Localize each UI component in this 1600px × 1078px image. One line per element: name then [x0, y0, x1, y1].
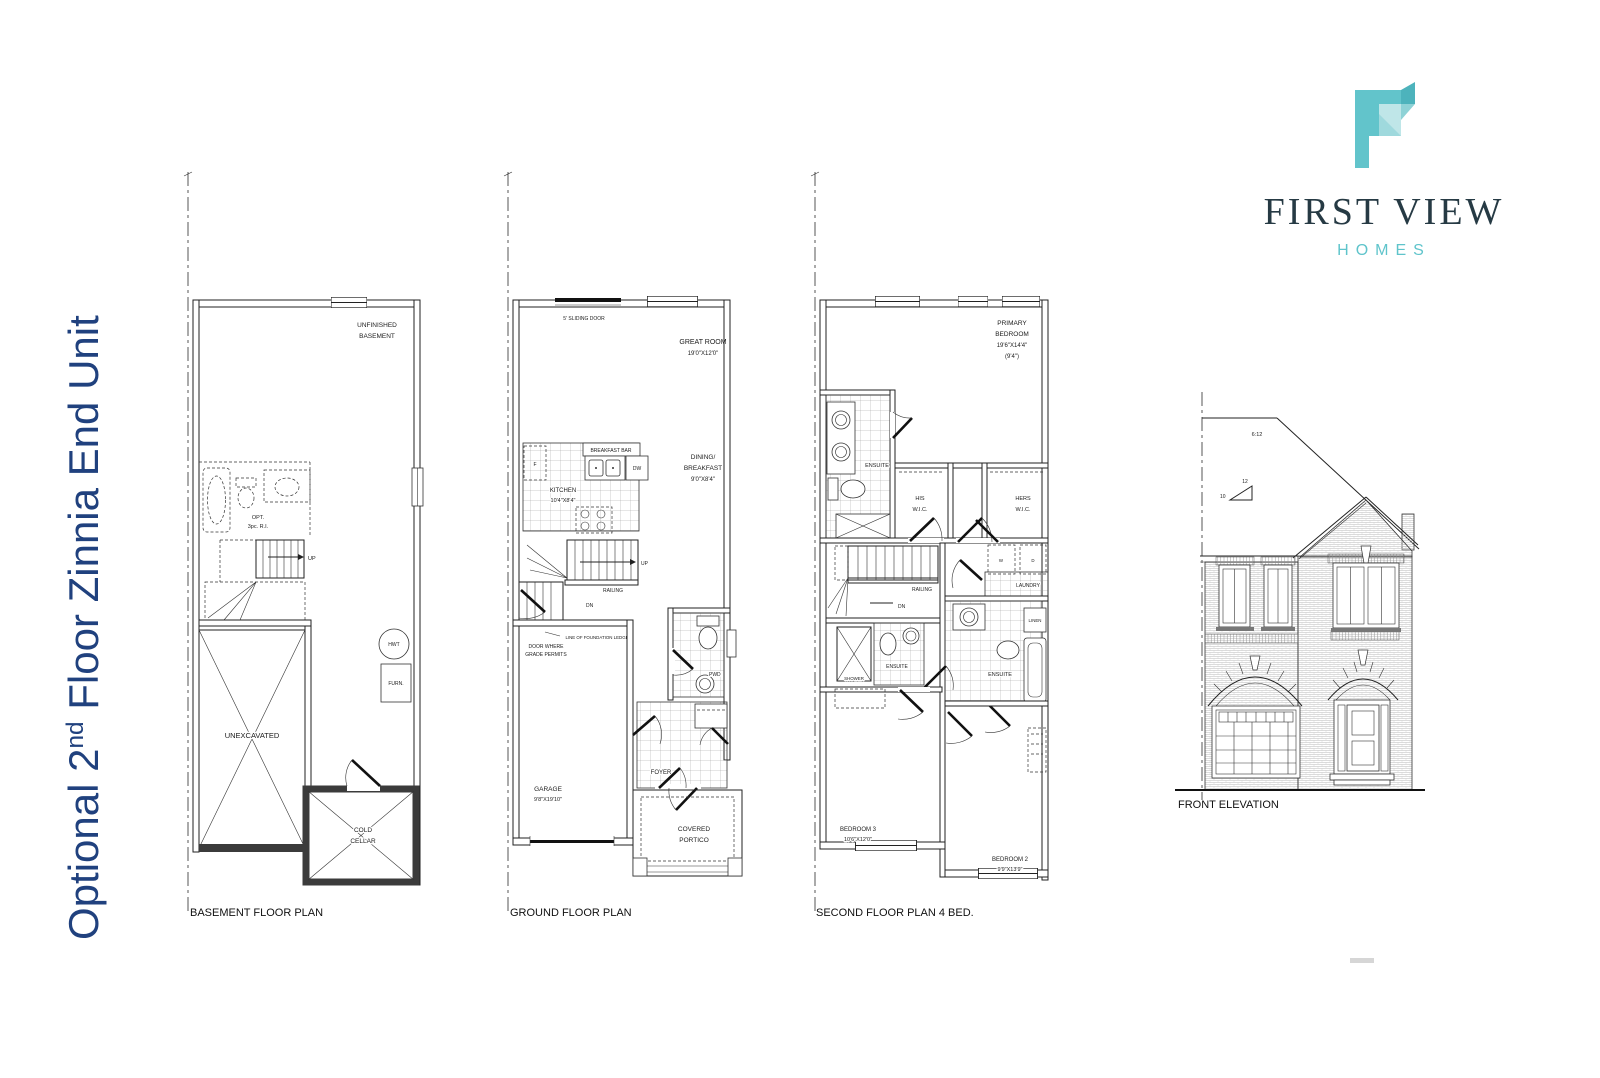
door-grade-note-1: DOOR WHERE	[529, 644, 565, 650]
basement-unexcavated: UNEXCAVATED	[199, 630, 305, 852]
linen-label: LINEN	[1029, 618, 1042, 623]
scan-smudge	[1350, 958, 1374, 963]
sliding-door-label: 5' SLIDING DOOR	[563, 316, 605, 322]
ground-covered-portico: COVERED PORTICO	[633, 790, 742, 876]
laundry-label: LAUNDRY	[1016, 583, 1040, 589]
primary-ensuite-label: ENSUITE	[865, 463, 889, 469]
hers-wic-label-1: HERS	[1015, 496, 1031, 502]
hers-wic-label-2: W.I.C.	[1016, 507, 1031, 513]
his-wic-label-1: HIS	[915, 496, 925, 502]
ground-plan-caption: GROUND FLOOR PLAN	[510, 907, 632, 919]
slope-rise-label: 12	[1242, 479, 1248, 485]
ground-dn-label: DN	[586, 603, 594, 609]
second-bedroom3: BEDROOM 3 10'6"X12'0"	[820, 687, 945, 851]
unexcavated-label: UNEXCAVATED	[225, 731, 280, 740]
foyer-label: FOYER	[651, 770, 672, 776]
portico-label-1: COVERED	[678, 826, 710, 833]
breakfast-bar-label: BREAKFAST BAR	[590, 448, 631, 454]
second-bed3-ensuite: SHOWER ENSUITE	[826, 618, 953, 690]
unfinished-basement-label-2: BASEMENT	[359, 333, 395, 340]
ground-foyer: FOYER	[633, 702, 728, 810]
dining-label-1: DINING/	[691, 454, 716, 461]
bedroom3-label: BEDROOM 3	[840, 827, 877, 833]
bed3-ensuite-label: ENSUITE	[886, 664, 908, 670]
unfinished-basement-label-1: UNFINISHED	[357, 322, 397, 329]
slope-triangle	[1230, 486, 1252, 500]
cold-cellar-label-1: COLD	[354, 827, 372, 834]
roof-slope-label: 6:12	[1252, 432, 1263, 438]
ground-floor-plan: 5' SLIDING DOOR GREAT ROOM 19'0"X12'0" D…	[504, 172, 742, 919]
second-railing-label: RAILING	[912, 587, 932, 593]
basement-floor-plan: OPT. 3pc. R.I. UP	[184, 172, 423, 919]
gable	[1300, 500, 1412, 557]
garage-dim: 9'8"X19'10"	[534, 797, 562, 803]
pwd-label: PWD	[709, 672, 721, 678]
ground-railing-label: RAILING	[603, 588, 623, 594]
dining-label-2: BREAKFAST	[684, 465, 722, 472]
furnace-label: FURN.	[388, 681, 403, 687]
garage-label: GARAGE	[534, 786, 562, 793]
ground-up-label: UP	[641, 561, 649, 567]
primary-bedroom-dim-2: (9'4")	[1005, 354, 1019, 360]
dishwasher-label: DW	[633, 466, 642, 472]
primary-bedroom-label-1: PRIMARY	[997, 320, 1027, 327]
shower-label: SHOWER	[844, 676, 864, 681]
foundation-ledge-note: LINE OF FOUNDATION LEDGE	[565, 635, 628, 640]
primary-bedroom-label-2: BEDROOM	[995, 331, 1029, 338]
second-plan-caption: SECOND FLOOR PLAN 4 BED.	[816, 907, 974, 919]
second-dn-label: DN	[898, 604, 906, 610]
ground-top-window	[647, 296, 698, 307]
opt-bath-label-1: OPT.	[252, 515, 265, 521]
front-elevation: 6:12 12 10	[1175, 392, 1425, 963]
basement-top-window	[331, 297, 367, 308]
architectural-drawings: OPT. 3pc. R.I. UP	[0, 0, 1600, 1078]
second-floor-plan: PRIMARY BEDROOM 19'6"X14'4" (9'4")	[811, 172, 1048, 919]
dining-dim: 9'0"X8'4"	[691, 477, 715, 483]
fridge-label: F	[533, 462, 536, 468]
hwt-label: HWT	[388, 642, 399, 648]
great-room-dim: 19'0"X12'0"	[688, 351, 719, 357]
bedroom3-dim: 10'6"X12'0"	[844, 837, 872, 843]
bed2-ensuite-label: ENSUITE	[988, 672, 1012, 678]
brochure-page: Optional 2nd Floor Zinnia End Unit FIRST…	[0, 0, 1600, 1078]
basement-plan-caption: BASEMENT FLOOR PLAN	[190, 907, 323, 919]
primary-bedroom-dim-1: 19'6"X14'4"	[997, 343, 1028, 349]
dryer-label: D	[1031, 558, 1034, 563]
kitchen-label: KITCHEN	[550, 488, 576, 494]
second-bed2-ensuite: LINEN ENSUITE	[945, 601, 1046, 733]
ground-stairs: UP RAILING DN	[519, 540, 649, 620]
basement-stairs: UP	[205, 540, 316, 620]
basement-opt-bath: OPT. 3pc. R.I.	[199, 462, 310, 536]
kitchen-dim: 10'4"X8'4"	[551, 498, 576, 504]
portico-label-2: PORTICO	[679, 837, 709, 844]
basement-cold-cellar: COLD CELLAR	[306, 760, 416, 882]
ground-kitchen: F BREAKFAST BAR DW KITCHEN 10'4"X8'4"	[523, 443, 648, 533]
opt-bath-label-2: 3pc. R.I.	[248, 524, 269, 530]
second-stairs: RAILING DN	[828, 546, 938, 616]
door-grade-note-2: GRADE PERMITS	[525, 652, 567, 658]
bedroom2-dim: 9'9"X13'9"	[998, 867, 1023, 873]
elevation-gable-window	[1328, 546, 1404, 632]
slope-run-label: 10	[1220, 494, 1226, 500]
washer-label: W	[999, 558, 1004, 563]
basement-up-label: UP	[308, 556, 316, 562]
great-room-label: GREAT ROOM	[679, 339, 726, 346]
bedroom2-label: BEDROOM 2	[992, 857, 1029, 863]
second-bedroom2: BEDROOM 2 9'9"X13'9"	[945, 712, 1048, 879]
his-wic-label-2: W.I.C.	[913, 507, 928, 513]
front-elevation-caption: FRONT ELEVATION	[1178, 799, 1279, 811]
second-laundry: W D LAUNDRY	[952, 545, 1048, 598]
cold-cellar-label-2: CELLAR	[350, 838, 376, 845]
